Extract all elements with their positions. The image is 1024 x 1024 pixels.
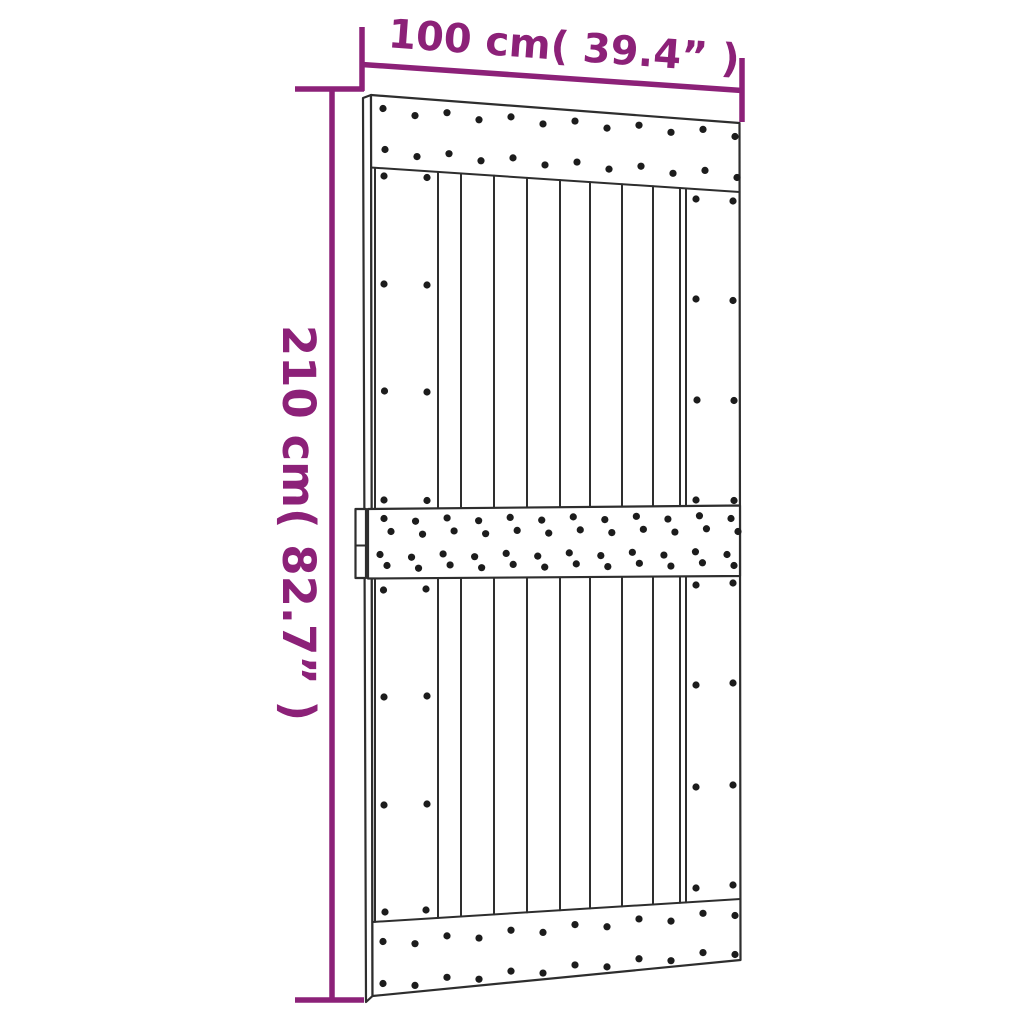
screw-dot xyxy=(507,514,514,521)
screw-dot xyxy=(503,550,510,557)
screw-dot xyxy=(380,586,387,593)
screw-dot xyxy=(640,526,647,533)
screw-dot xyxy=(635,955,642,962)
screw-dot xyxy=(729,679,736,686)
screw-dot xyxy=(692,295,699,302)
door-illustration xyxy=(356,95,742,1002)
screw-dot xyxy=(660,551,667,558)
screw-dot xyxy=(408,554,415,561)
screw-dot xyxy=(734,528,741,535)
screw-dot xyxy=(633,513,640,520)
screw-dot xyxy=(538,517,545,524)
screw-dot xyxy=(443,932,450,939)
screw-dot xyxy=(507,113,514,120)
screw-dot xyxy=(380,172,387,179)
screw-dot xyxy=(422,585,429,592)
screw-dot xyxy=(379,105,386,112)
screw-dot xyxy=(692,581,699,588)
screw-dot xyxy=(571,921,578,928)
screw-dot xyxy=(423,388,430,395)
screw-dot xyxy=(699,910,706,917)
screw-dot xyxy=(450,527,457,534)
dimension-diagram: 100 cm( 39.4” ) 210 cm( 82.7” ) xyxy=(0,0,1024,1024)
screw-dot xyxy=(692,496,699,503)
screw-dot xyxy=(539,120,546,127)
screw-dot xyxy=(443,974,450,981)
height-dimension-label: 210 cm( 82.7” ) xyxy=(272,325,325,721)
screw-dot xyxy=(482,530,489,537)
screw-dot xyxy=(635,122,642,129)
screw-dot xyxy=(667,918,674,925)
screw-dot xyxy=(608,529,615,536)
screw-dot xyxy=(604,563,611,570)
screw-dot xyxy=(381,146,388,153)
screw-dot xyxy=(571,961,578,968)
height-dimension: 210 cm( 82.7” ) xyxy=(272,89,364,1000)
screw-dot xyxy=(692,884,699,891)
screw-dot xyxy=(696,512,703,519)
screw-dot xyxy=(729,881,736,888)
screw-dot xyxy=(423,800,430,807)
screw-dot xyxy=(692,548,699,555)
screw-dot xyxy=(443,109,450,116)
screw-dot xyxy=(729,297,736,304)
screw-dot xyxy=(730,497,737,504)
door-handle xyxy=(356,509,367,578)
screw-dot xyxy=(597,552,604,559)
screw-dot xyxy=(566,549,573,556)
screw-dot xyxy=(514,527,521,534)
screw-dot xyxy=(727,515,734,522)
screw-dot xyxy=(570,513,577,520)
screw-dot xyxy=(692,195,699,202)
screw-dot xyxy=(699,559,706,566)
screw-dot xyxy=(671,528,678,535)
screw-dot xyxy=(411,982,418,989)
screw-dot xyxy=(667,129,674,136)
screw-dot xyxy=(507,927,514,934)
screw-dot xyxy=(413,153,420,160)
screw-dot xyxy=(539,969,546,976)
screw-dot xyxy=(446,561,453,568)
screw-dot xyxy=(603,963,610,970)
screw-dot xyxy=(731,133,738,140)
screw-dot xyxy=(573,560,580,567)
screw-dot xyxy=(412,518,419,525)
screw-dot xyxy=(477,157,484,164)
screw-dot xyxy=(445,150,452,157)
screw-dot xyxy=(545,530,552,537)
screw-dot xyxy=(573,158,580,165)
screw-dot xyxy=(731,912,738,919)
screw-dot xyxy=(471,553,478,560)
door-handle-plate xyxy=(356,509,367,578)
screw-dot xyxy=(729,781,736,788)
screw-dot xyxy=(423,692,430,699)
screw-dot xyxy=(422,906,429,913)
screw-dot xyxy=(703,525,710,532)
screw-dot xyxy=(701,167,708,174)
screw-dot xyxy=(667,562,674,569)
screw-dot xyxy=(730,397,737,404)
product-dimension-image: 100 cm( 39.4” ) 210 cm( 82.7” ) xyxy=(0,0,1024,1024)
screw-dot xyxy=(475,517,482,524)
screw-dot xyxy=(383,562,390,569)
screw-dot xyxy=(541,564,548,571)
screw-dot xyxy=(419,531,426,538)
screw-dot xyxy=(699,126,706,133)
screw-dot xyxy=(475,976,482,983)
screw-dot xyxy=(730,562,737,569)
screw-dot xyxy=(380,280,387,287)
screw-dot xyxy=(381,908,388,915)
screw-dot xyxy=(507,968,514,975)
screw-dot xyxy=(571,117,578,124)
screw-dot xyxy=(380,496,387,503)
screw-dot xyxy=(577,526,584,533)
screw-dot xyxy=(379,980,386,987)
screw-dot xyxy=(381,387,388,394)
screw-dot xyxy=(534,553,541,560)
screw-dot xyxy=(664,515,671,522)
screw-dot xyxy=(380,693,387,700)
screw-dot xyxy=(629,549,636,556)
screw-dot xyxy=(723,551,730,558)
screw-dot xyxy=(601,516,608,523)
screw-dot xyxy=(475,116,482,123)
screw-dot xyxy=(636,560,643,567)
screw-dot xyxy=(603,923,610,930)
screw-dot xyxy=(693,396,700,403)
screw-dot xyxy=(669,170,676,177)
screw-dot xyxy=(509,154,516,161)
screw-dot xyxy=(729,197,736,204)
screw-dot xyxy=(423,281,430,288)
screw-dot xyxy=(387,528,394,535)
screw-dot xyxy=(423,497,430,504)
screw-dot xyxy=(380,515,387,522)
screw-dot xyxy=(423,174,430,181)
screw-dot xyxy=(415,565,422,572)
screw-dot xyxy=(510,561,517,568)
screw-dot xyxy=(667,957,674,964)
screw-dot xyxy=(692,681,699,688)
screw-dot xyxy=(731,951,738,958)
screw-dot xyxy=(605,166,612,173)
screw-dot xyxy=(411,940,418,947)
screw-dot xyxy=(376,551,383,558)
screw-dot xyxy=(380,801,387,808)
screw-dot xyxy=(411,112,418,119)
screw-dot xyxy=(478,564,485,571)
screw-dot xyxy=(692,783,699,790)
screw-dot xyxy=(699,949,706,956)
screw-dot xyxy=(475,934,482,941)
middle-rail xyxy=(368,506,740,579)
screw-dot xyxy=(733,174,740,181)
screw-dot xyxy=(443,514,450,521)
screw-dot xyxy=(637,163,644,170)
screw-dot xyxy=(603,125,610,132)
screw-dot xyxy=(635,915,642,922)
screw-dot xyxy=(541,161,548,168)
screw-dot xyxy=(729,579,736,586)
screw-dot xyxy=(439,550,446,557)
screw-dot xyxy=(539,929,546,936)
screw-dot xyxy=(379,938,386,945)
